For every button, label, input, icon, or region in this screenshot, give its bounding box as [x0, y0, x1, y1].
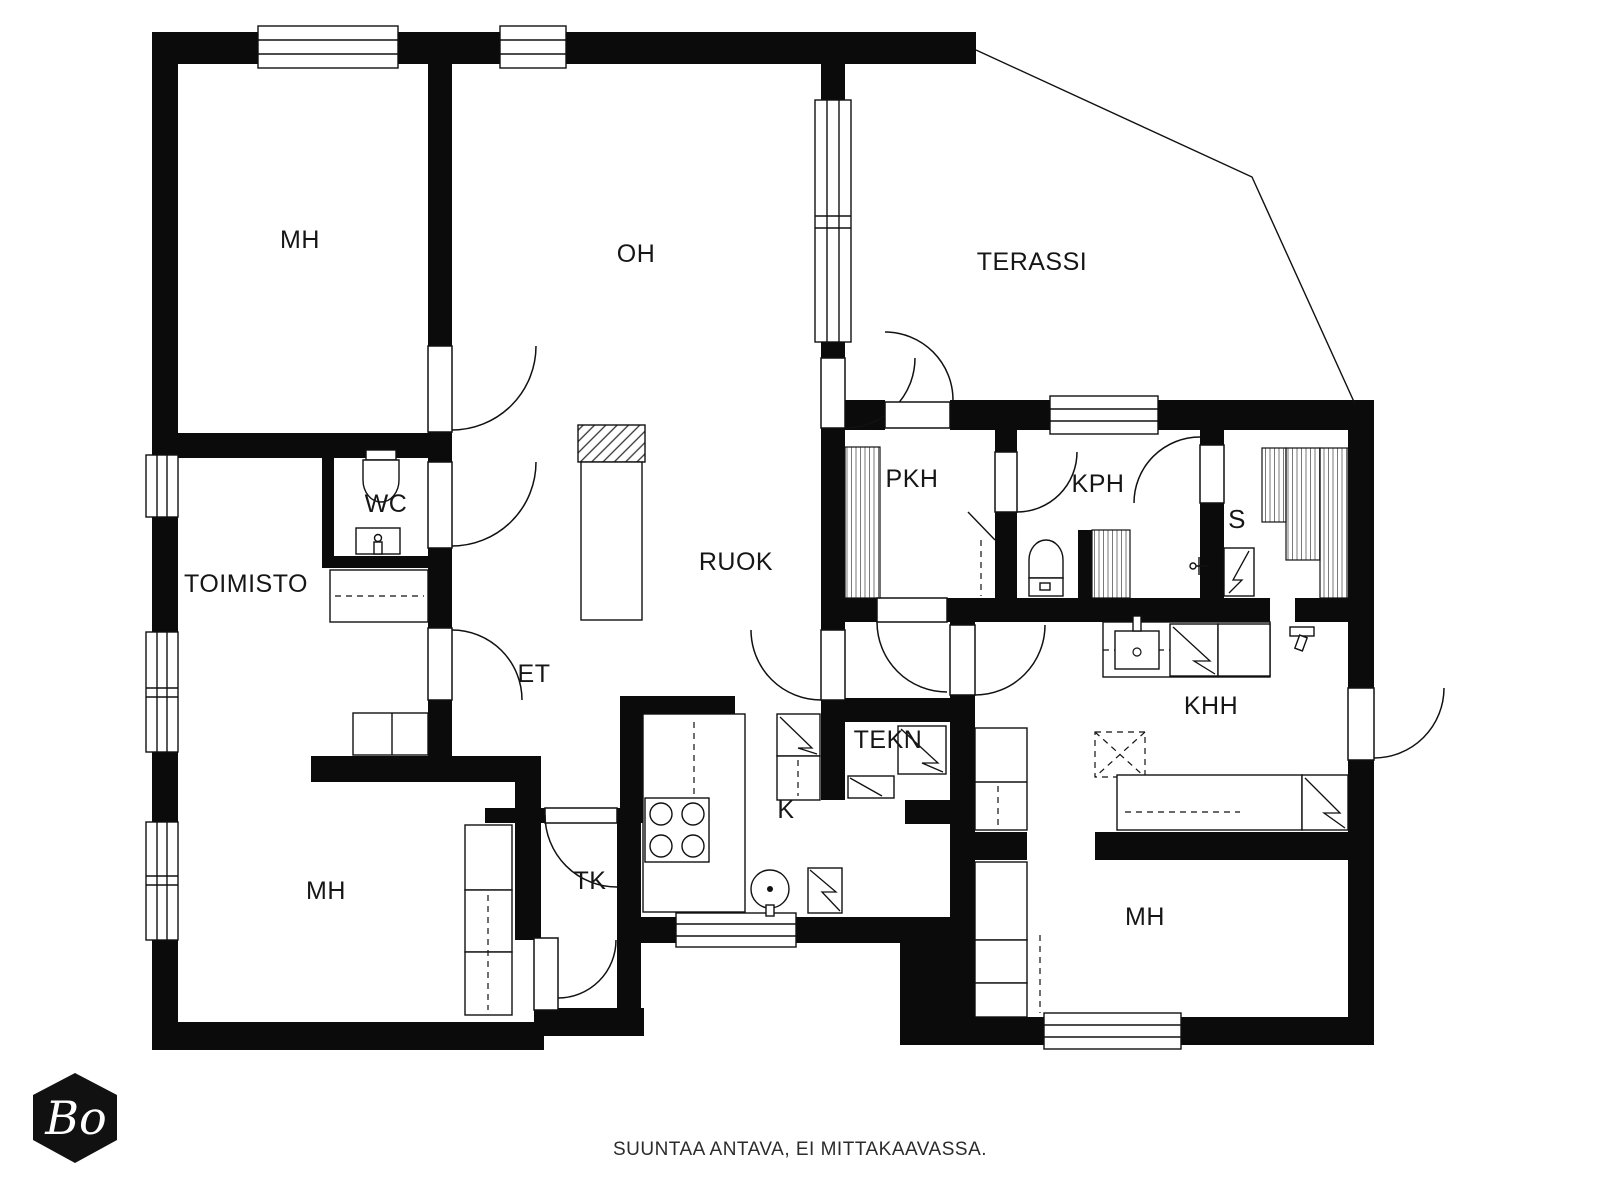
room-label-oh: OH [617, 240, 656, 268]
khh-cabinet-left [975, 728, 1027, 830]
toimisto-desk [330, 570, 428, 622]
window-left-3 [146, 822, 178, 940]
khh-floor-drain [1095, 732, 1145, 777]
door-hall-south [877, 598, 947, 692]
fridge [777, 714, 820, 800]
room-label-wc: WC [365, 490, 408, 518]
room-label-khh: KHH [1184, 692, 1238, 720]
khh-counter-top [1103, 616, 1270, 677]
window-left-1 [146, 455, 178, 517]
room-label-sauna: S [1228, 504, 1246, 534]
door-wc [428, 462, 536, 548]
room-label-toimisto: TOIMISTO [184, 570, 308, 598]
kph-shower-panel [1092, 530, 1130, 598]
pkh-drying-cabinet [845, 447, 880, 598]
door-sauna [1134, 437, 1224, 503]
fireplace [578, 425, 645, 620]
door-pkh-terrace [885, 332, 953, 428]
door-front-entry [534, 938, 616, 1010]
door-mh-top-left [428, 346, 536, 432]
window-mh-bottom-right [1044, 1013, 1181, 1049]
room-label-tekn: TEKN [854, 726, 923, 754]
room-label-ruok: RUOK [699, 548, 773, 576]
toimisto-cabinet [353, 713, 428, 755]
room-label-terassi: TERASSI [977, 248, 1087, 276]
brand-logo: Bo [33, 1073, 117, 1163]
room-label-k: K [777, 796, 794, 824]
door-hall-west [751, 630, 845, 700]
door-khh [950, 625, 1045, 695]
room-label-mh-bottom-left: MH [306, 877, 346, 905]
khh-counter-bottom [1117, 775, 1348, 830]
door-pkh-kph [995, 452, 1077, 512]
disclaimer-text: SUUNTAA ANTAVA, EI MITTAKAAVASSA. [613, 1139, 987, 1160]
khh-faucet [1290, 627, 1314, 651]
dishwasher [808, 868, 842, 913]
sauna-benches [1262, 448, 1348, 598]
wc-sink [356, 528, 400, 554]
mh-br-closet [975, 862, 1040, 1017]
door-toimisto [428, 628, 522, 700]
kph-toilet [1029, 540, 1063, 596]
kitchen-sink [751, 870, 789, 916]
logo-text: Bo [44, 1091, 107, 1145]
stove [645, 798, 709, 862]
room-label-kph: KPH [1072, 470, 1125, 498]
window-oh-east [815, 100, 851, 342]
window-kph [1050, 396, 1158, 434]
floor-plan: MH OH TERASSI WC TOIMISTO RUOK ET PKH KP… [0, 0, 1600, 1200]
room-label-pkh: PKH [886, 465, 939, 493]
floor-plan-page: MH OH TERASSI WC TOIMISTO RUOK ET PKH KP… [0, 0, 1600, 1200]
window-left-2 [146, 632, 178, 752]
mh-bl-closet [465, 825, 512, 1015]
pkh-sliding-door [968, 512, 995, 596]
sauna-heater [1224, 548, 1254, 596]
terrace-boundary [976, 50, 1355, 404]
door-khh-exterior [1348, 688, 1444, 760]
window-top-1 [258, 26, 398, 68]
room-label-et: ET [518, 660, 551, 688]
room-label-mh-top-left: MH [280, 226, 320, 254]
window-top-2 [500, 26, 566, 68]
room-label-mh-bottom-right: MH [1125, 903, 1165, 931]
window-kitchen-south [676, 913, 796, 947]
room-label-tk: TK [574, 867, 607, 895]
